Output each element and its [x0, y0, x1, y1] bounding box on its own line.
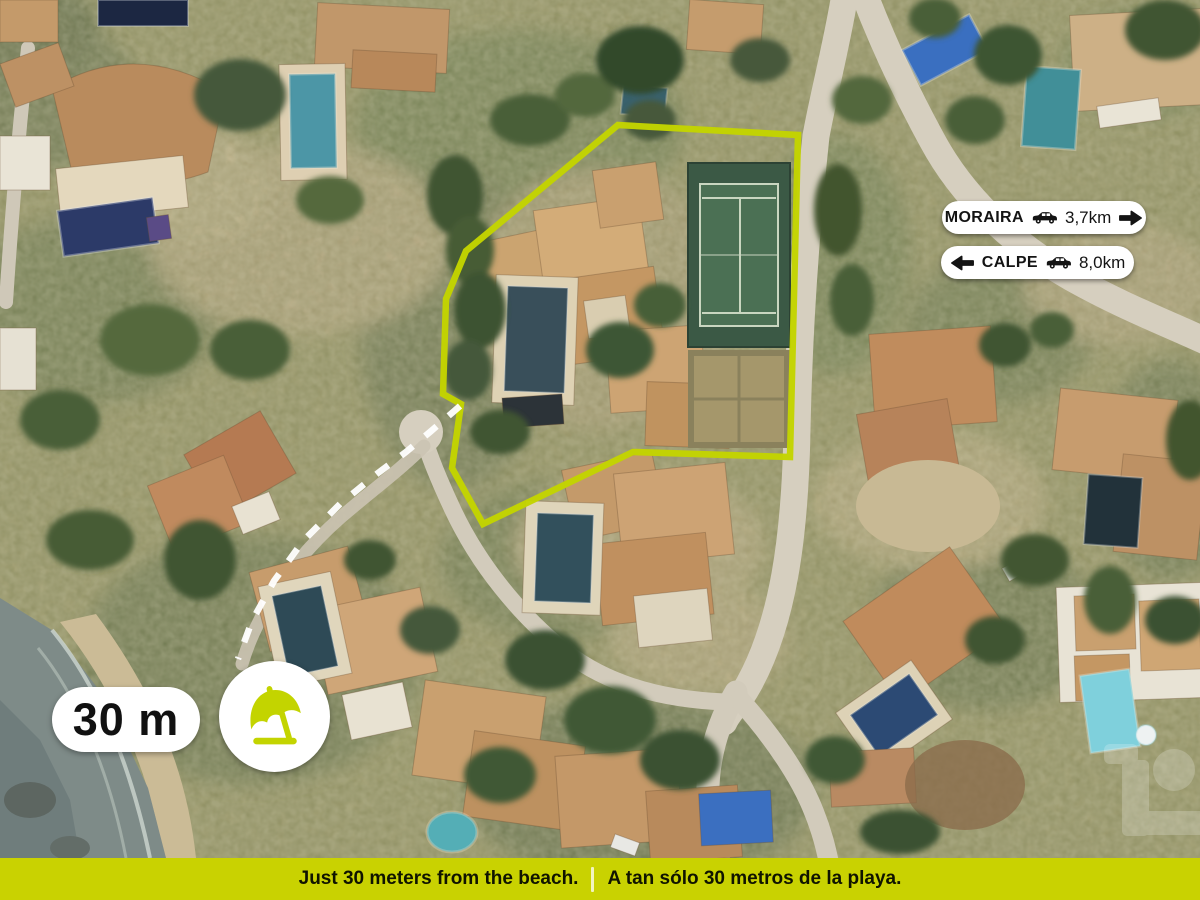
footer-text-es: A tan sólo 30 metros de la playa.	[607, 868, 901, 890]
tennis-court	[688, 163, 790, 448]
distance-label: 8,0km	[1079, 253, 1125, 273]
property-flyer-image: MORAIRA 3,7km CALPE	[0, 0, 1200, 900]
beach-distance-label: 30 m	[73, 694, 180, 746]
beach-umbrella-marker	[219, 661, 330, 772]
car-icon	[1031, 211, 1058, 225]
car-icon	[1045, 256, 1072, 270]
distance-badge-calpe: CALPE 8,0km	[941, 246, 1134, 279]
arrow-right-icon	[1118, 209, 1143, 227]
footer-text-en: Just 30 meters from the beach.	[299, 868, 579, 890]
villa-pool	[504, 286, 568, 393]
arrow-left-icon	[950, 254, 975, 272]
distance-badge-moraira: MORAIRA 3,7km	[942, 201, 1146, 234]
beach-distance-pill: 30 m	[52, 687, 200, 752]
beach-umbrella-icon	[241, 683, 309, 751]
town-label: MORAIRA	[945, 209, 1024, 227]
town-label: CALPE	[982, 254, 1038, 272]
distance-label: 3,7km	[1065, 208, 1111, 228]
footer-bar: Just 30 meters from the beach. A tan sól…	[0, 858, 1200, 900]
footer-divider	[591, 867, 594, 892]
